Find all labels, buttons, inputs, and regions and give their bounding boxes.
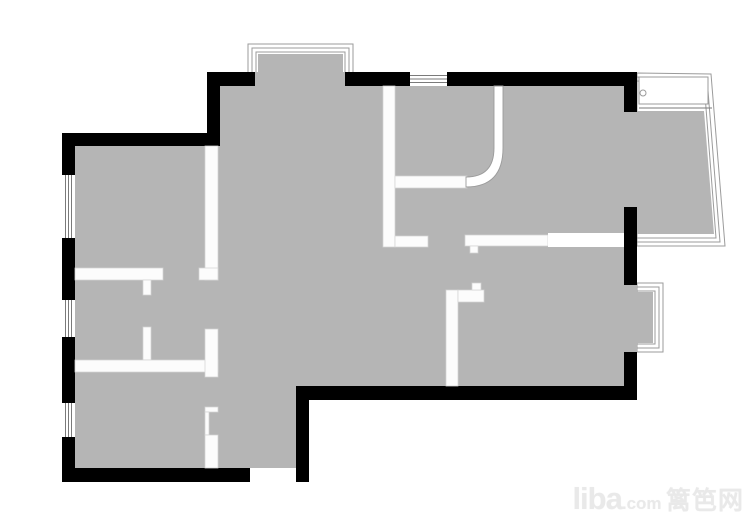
wall-left-1 xyxy=(62,133,75,175)
wall-leftwing-top xyxy=(62,133,220,146)
wall-right-1 xyxy=(624,72,637,112)
balcony-counter xyxy=(639,77,708,104)
door-jamb-bottom xyxy=(205,435,218,468)
partition-kitchen-counter xyxy=(395,176,467,188)
partition-lowerleft-horizontal xyxy=(75,360,218,372)
partition-bath-horizontal xyxy=(458,290,484,302)
partition-center-tab xyxy=(470,246,478,253)
wall-left-2 xyxy=(62,238,75,300)
partition-center-horizontal xyxy=(465,235,548,246)
wall-top-b xyxy=(345,72,410,86)
watermark-site: 篱笆网 xyxy=(666,487,744,515)
door-jamb-top xyxy=(205,407,218,412)
watermark-brand: liba xyxy=(572,481,621,516)
partition-left-rooms xyxy=(75,268,163,280)
partition-hall-vertical xyxy=(205,146,218,280)
entry-opening xyxy=(250,468,296,482)
bay-right-floor xyxy=(635,292,653,343)
partition-bath-tab xyxy=(472,283,481,290)
partition-left-closet xyxy=(143,327,151,360)
partition-lowerleft-vertical xyxy=(205,329,218,377)
wall-right-3 xyxy=(624,352,637,400)
floor-plan xyxy=(0,0,750,525)
wall-top-c xyxy=(447,72,637,86)
partition-kitchen-bottom xyxy=(395,236,428,247)
wall-step xyxy=(296,386,309,482)
watermark-tld: .com xyxy=(622,494,662,513)
partition-bath-vertical xyxy=(446,290,458,386)
partition-hall-foot xyxy=(199,268,218,280)
bay-top-floor xyxy=(258,54,343,74)
door-leaf xyxy=(205,412,209,435)
wall-left-3 xyxy=(62,337,75,403)
floor-plan-page: liba.com 篱笆网 xyxy=(0,0,750,525)
partition-kitchen-vertical xyxy=(383,86,395,247)
wall-bottom-left xyxy=(62,468,250,482)
wall-right-2 xyxy=(624,207,637,285)
partition-left-tab xyxy=(143,280,151,295)
balcony xyxy=(637,73,725,246)
watermark: liba.com 篱笆网 xyxy=(572,481,744,517)
wall-bottom-right xyxy=(296,386,637,400)
bedroom-door-opening xyxy=(548,233,624,247)
balcony-floor xyxy=(637,111,714,234)
